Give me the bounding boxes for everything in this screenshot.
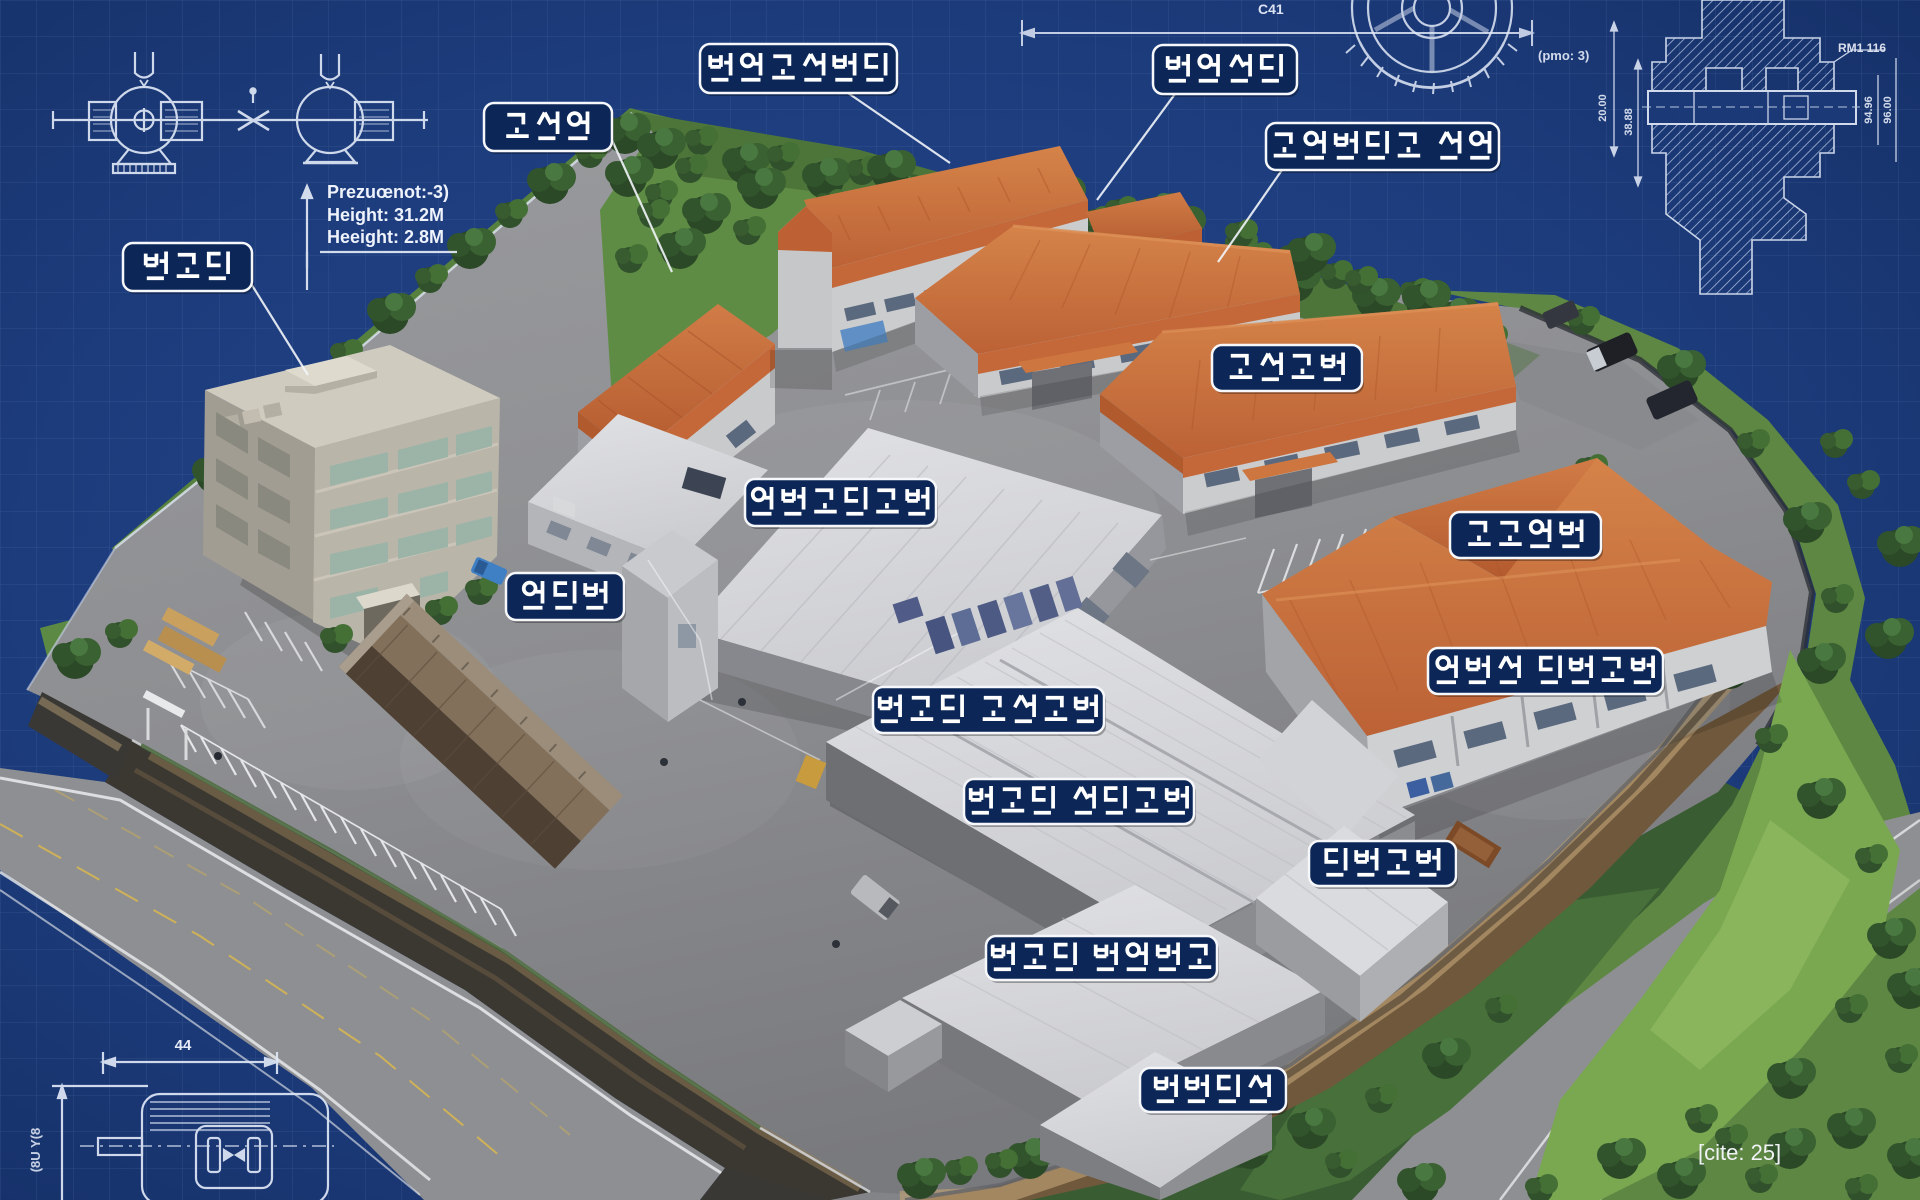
svg-text:Heeight: 2.8M: Heeight: 2.8M bbox=[327, 227, 444, 247]
svg-text:(8U Y(8: (8U Y(8 bbox=[28, 1128, 43, 1173]
svg-text:[cite: 25]: [cite: 25] bbox=[1698, 1140, 1781, 1165]
svg-text:20.00: 20.00 bbox=[1597, 94, 1609, 122]
svg-text:44: 44 bbox=[175, 1037, 192, 1054]
svg-text:RM1 116: RM1 116 bbox=[1838, 41, 1886, 55]
svg-text:38.88: 38.88 bbox=[1623, 108, 1635, 136]
svg-text:94.96: 94.96 bbox=[1863, 96, 1875, 124]
svg-text:(pmo: 3): (pmo: 3) bbox=[1538, 48, 1589, 63]
svg-text:96.00: 96.00 bbox=[1882, 96, 1894, 124]
svg-text:Prezuœnot:-3): Prezuœnot:-3) bbox=[327, 182, 449, 202]
svg-text:C41: C41 bbox=[1258, 1, 1284, 17]
svg-text:Height: 31.2M: Height: 31.2M bbox=[327, 205, 444, 225]
